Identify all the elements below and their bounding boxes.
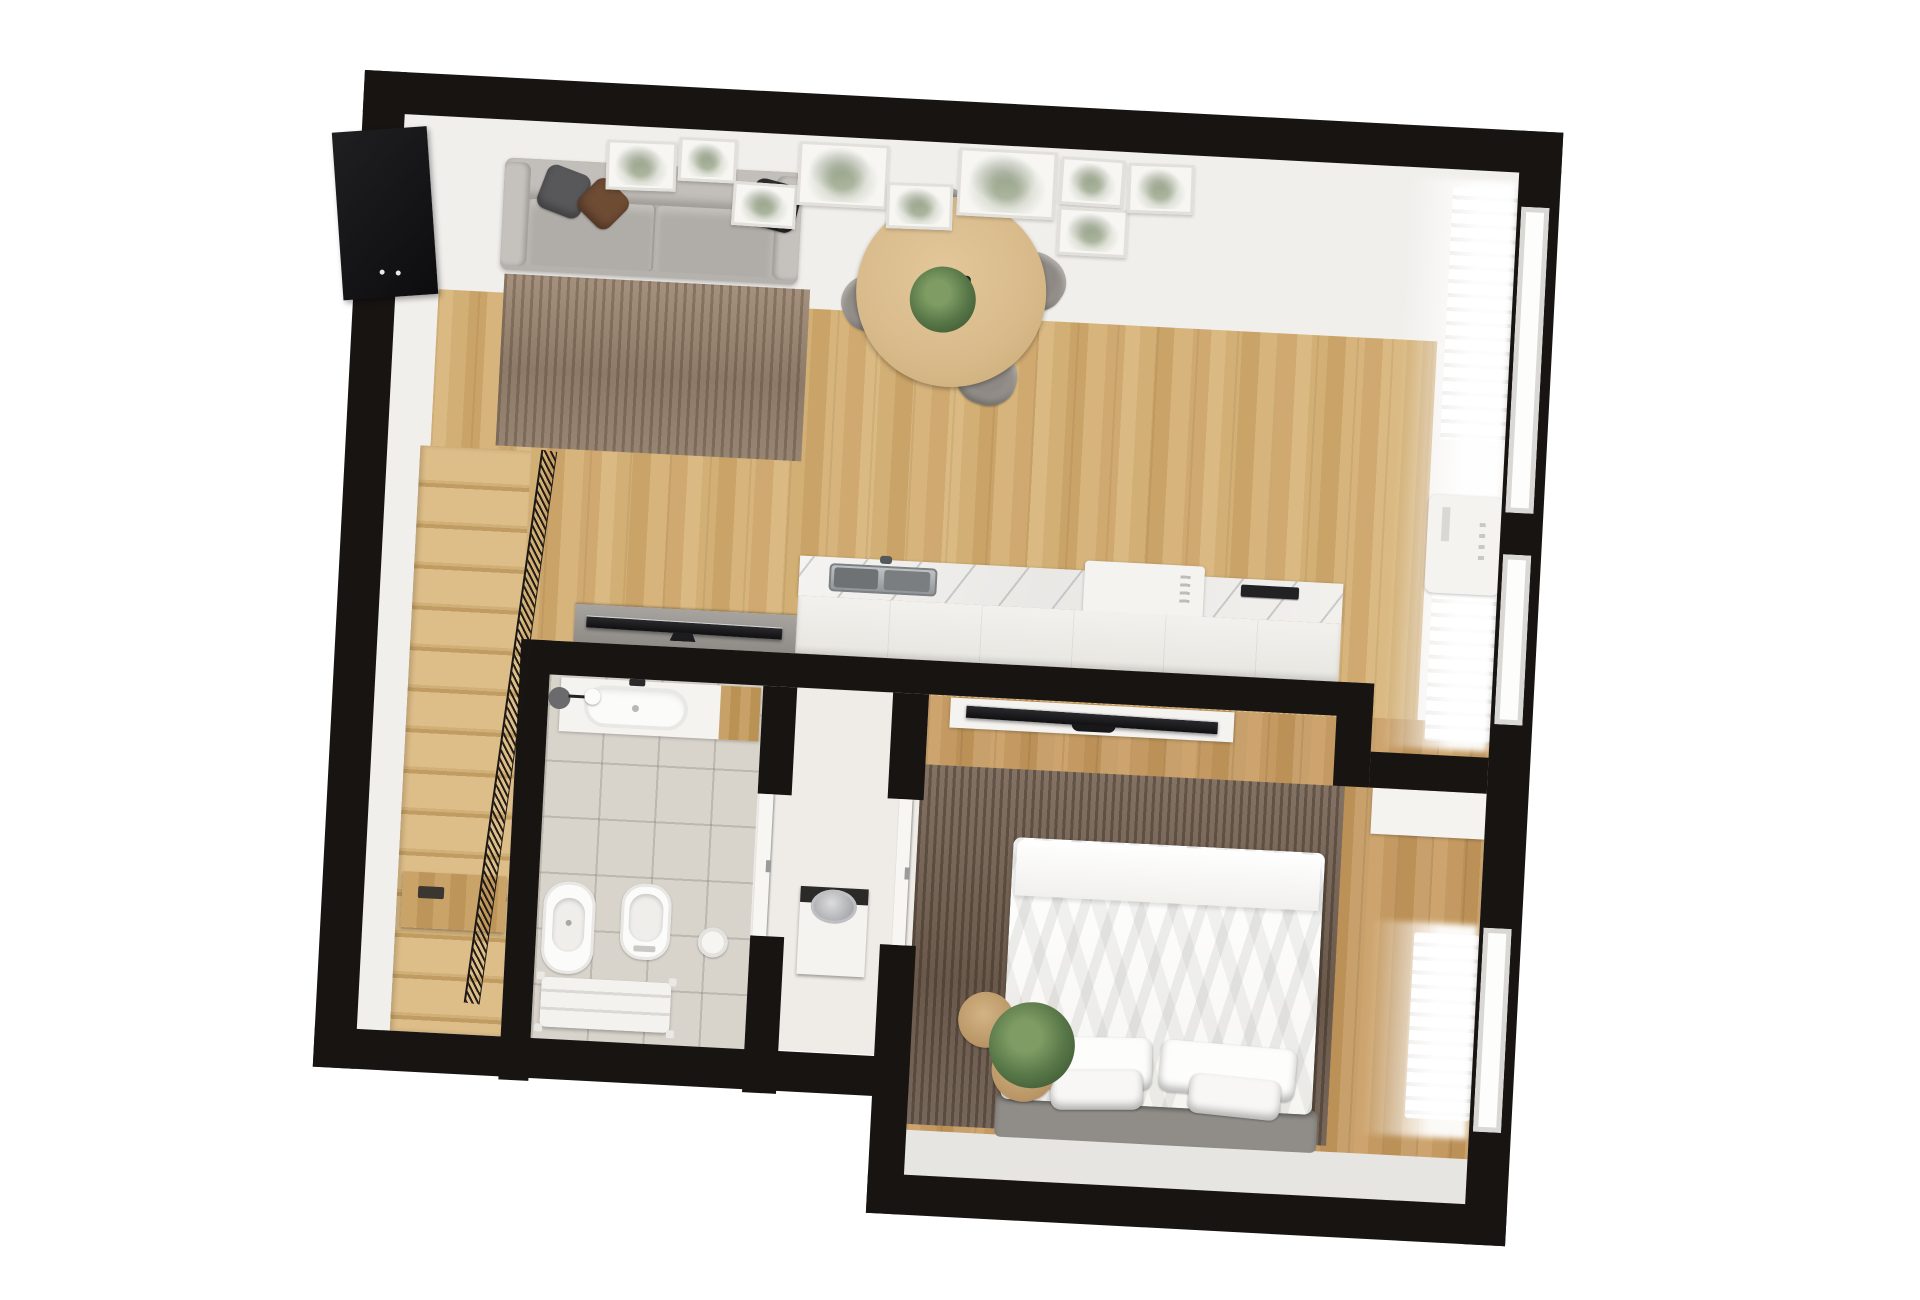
sink-bowl-left (834, 567, 879, 589)
curtain-bedroom (1361, 920, 1478, 1139)
botanical-print (1064, 161, 1121, 203)
wall-bathroom-hall-upper (758, 686, 798, 796)
toilet (619, 883, 673, 962)
gallery-frame-3 (731, 181, 798, 229)
living-area-rug (496, 274, 811, 462)
interior-wall-jog-horizontal (1369, 752, 1489, 794)
ac-vent (1441, 507, 1451, 541)
sink-bowl-right (884, 570, 931, 592)
kitchen-sink (828, 563, 937, 597)
gallery-frame-9 (1127, 163, 1195, 215)
bathroom-door-handle (766, 860, 772, 872)
kitchen-faucet (880, 556, 892, 565)
corner-wall-tv (332, 126, 438, 300)
tv-indicator-dots (379, 269, 384, 274)
towel-bench (539, 976, 671, 1033)
ac-buttons (1478, 523, 1486, 563)
shelf-object (418, 886, 445, 899)
gallery-frame-8 (1056, 206, 1128, 258)
appliance-controls (1179, 575, 1191, 605)
vanity-faucet (629, 679, 645, 687)
botanical-print (611, 145, 672, 187)
botanical-print (736, 186, 792, 224)
wall-hall-bedroom-upper (888, 692, 929, 800)
interior-wall-jog-vertical (1333, 682, 1374, 788)
toilet-flush (633, 945, 655, 952)
countertop-appliance (1083, 560, 1206, 618)
sofa-armrest-left (500, 161, 531, 266)
gallery-frame-1 (606, 139, 678, 191)
botanical-print (891, 187, 948, 225)
gallery-frame-6 (956, 147, 1057, 220)
bed-pillow-front-left (1051, 1070, 1143, 1110)
botanical-print (1062, 212, 1124, 253)
gallery-frame-2 (678, 137, 738, 184)
sink-drain (632, 705, 639, 712)
ac-unit (1424, 494, 1504, 596)
bedroom-door-handle (904, 867, 910, 879)
toilet-seat (628, 893, 664, 943)
bedroom-closet-shelf (1370, 788, 1486, 840)
floor-plan-stage (0, 0, 1920, 1300)
gallery-frame-4 (797, 141, 890, 210)
living-tv-stand (670, 632, 696, 642)
botanical-print (802, 146, 885, 204)
floor-plan (307, 70, 1564, 1246)
botanical-print (961, 152, 1052, 215)
botanical-print (683, 142, 733, 178)
vanity-wood-end (718, 685, 761, 741)
gallery-frame-7 (1059, 156, 1126, 208)
gallery-frame-5 (886, 182, 954, 230)
bench-leg (537, 971, 545, 979)
bidet (540, 881, 597, 976)
botanical-print (1132, 168, 1189, 210)
laundry-bin (796, 886, 869, 977)
